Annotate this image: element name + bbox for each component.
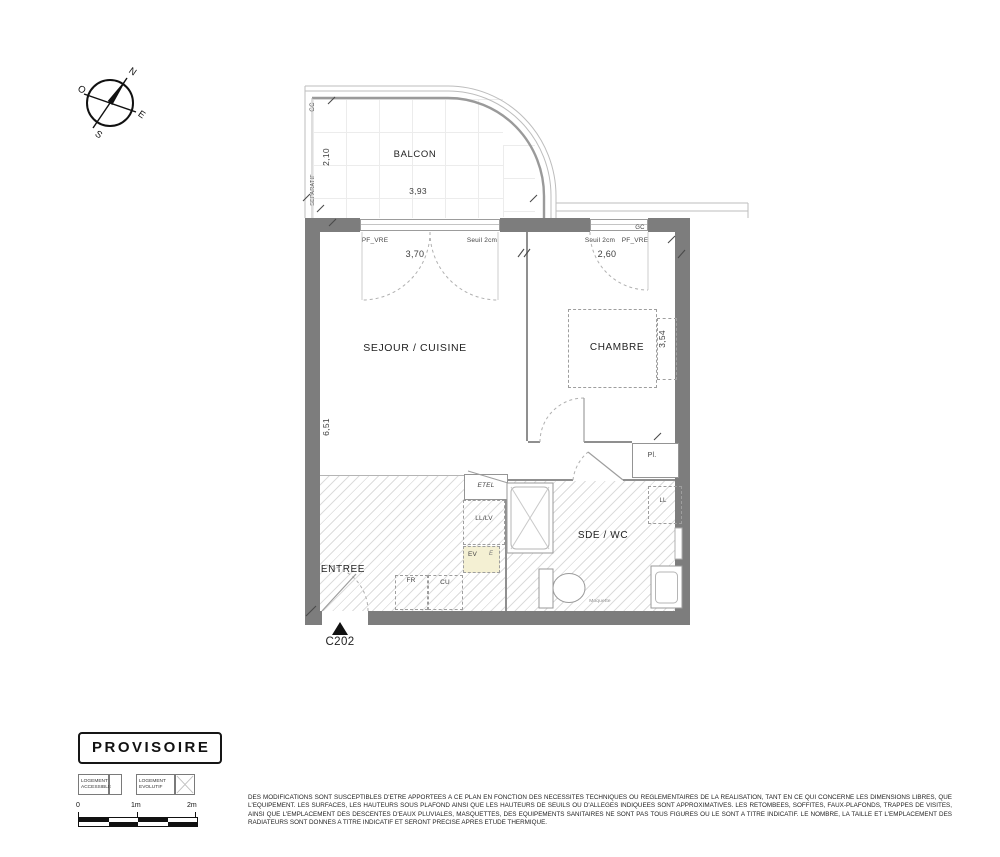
wall-right: [675, 218, 690, 625]
lllv-appliance-box: [463, 500, 505, 545]
compass-west-label: O: [75, 83, 87, 96]
partition-chambre-bottom-b: [584, 441, 632, 443]
ann-lllv: LL/LV: [464, 515, 504, 522]
legend-accessible-label: LOGEMENTACCESSIBLE: [78, 774, 109, 795]
entrance-marker-triangle: [332, 622, 348, 635]
wall-top-left-segment: [305, 218, 360, 232]
provisoire-stamp: PROVISOIRE: [78, 732, 222, 764]
scale-segment: [168, 822, 198, 826]
wall-bottom-segment: [368, 611, 690, 625]
dim-balcon-depth: 2,10: [321, 137, 333, 177]
legend-evolutif-label: LOGEMENTEVOLUTIF: [136, 774, 175, 795]
compass-south-label: S: [93, 129, 105, 142]
window-sejour: [360, 219, 500, 231]
dim-chambre-height: 3,54: [657, 319, 669, 359]
ann-pf-vre-left: PF_VRE: [355, 237, 395, 244]
room-label-entree: ENTREE: [297, 564, 389, 575]
ann-ll: LL: [648, 498, 678, 504]
ann-pl: Pl.: [632, 452, 672, 459]
ann-pf-vre-right: PF_VRE: [615, 237, 655, 244]
room-label-chambre: CHAMBRE: [567, 342, 667, 353]
dim-sejour-width: 3,70: [395, 249, 435, 259]
scale-segment: [109, 822, 139, 826]
dim-chambre-width: 2,60: [587, 249, 627, 259]
room-label-sde-wc: SDE / WC: [553, 530, 653, 541]
legend-accessible-checkbox: [109, 774, 122, 795]
scale-segment: [79, 818, 109, 822]
compass-east-label: E: [136, 109, 148, 122]
legend-evolutif-checkbox: [175, 774, 195, 795]
ann-gc-right: GC: [630, 225, 650, 231]
room-label-balcon: BALCON: [365, 149, 465, 160]
balcony-tile-grid-corner: [503, 145, 535, 217]
washer-ll-box: [648, 486, 682, 524]
ann-moquette: Moquette: [570, 599, 630, 604]
scale-bar: [78, 817, 198, 827]
wall-bottom-left-segment: [305, 611, 322, 625]
partition-chambre-bottom-a: [528, 441, 540, 443]
wall-top-middle-segment: [500, 218, 590, 232]
ann-cu: CU: [425, 579, 465, 586]
legend-evolutif-text: LOGEMENTEVOLUTIF: [139, 779, 166, 791]
scale-segment: [138, 818, 168, 822]
disclaimer-text: DES MODIFICATIONS SONT SUSCEPTIBLES D'ET…: [248, 794, 952, 827]
scalebar-label-2m: 2m: [187, 802, 197, 809]
legend-accessible-text: LOGEMENTACCESSIBLE: [81, 779, 111, 791]
x-mark-icon: [176, 774, 194, 795]
compass-rose: N O E S: [75, 65, 147, 141]
floor-plan-sheet: N O E S BALCON SEJOUR / CUISINE CHAMBRE …: [0, 0, 1000, 857]
partition-sejour-chambre: [526, 232, 528, 441]
ann-ev-e: E: [489, 551, 501, 557]
window-glazing-line: [361, 224, 499, 225]
scalebar-label-1m: 1m: [131, 802, 141, 809]
dim-left-height: 6,51: [321, 407, 333, 447]
closet-pl: [632, 443, 679, 478]
ann-separatif: SEPARATIF: [310, 165, 322, 215]
compass-north-label: N: [126, 65, 138, 78]
ann-gc-balcony: GC: [310, 97, 322, 117]
ann-etel: ETEL: [466, 482, 506, 489]
partition-sde-top-a: [505, 479, 573, 481]
dim-balcon-width: 3,93: [398, 186, 438, 196]
room-label-sejour-cuisine: SEJOUR / CUISINE: [350, 342, 480, 354]
unit-number: C202: [318, 636, 362, 648]
scalebar-label-0: 0: [76, 802, 80, 809]
ann-seuil-left: Seuil 2cm: [460, 237, 504, 244]
partition-sde-top-b: [623, 479, 675, 481]
